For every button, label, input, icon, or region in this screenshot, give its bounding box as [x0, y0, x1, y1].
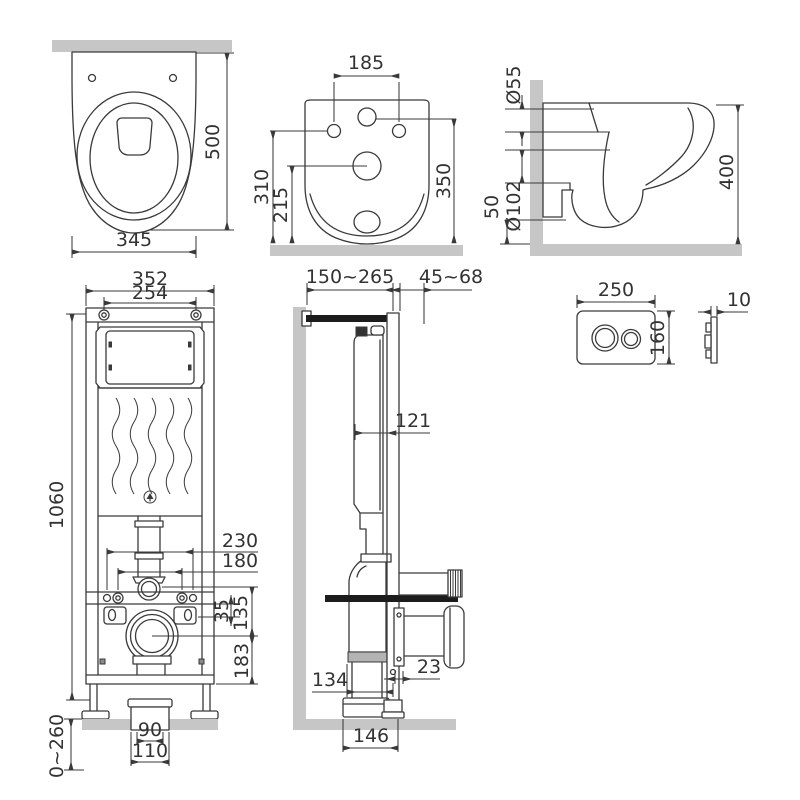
dim-rail-gap: 23 [417, 656, 441, 678]
outlet-pipe [137, 664, 165, 675]
view-frame-side: 150~265 45~68 121 23 134 146 [293, 266, 483, 752]
dim-bowl-height: 400 [716, 154, 738, 190]
rail-clip [100, 659, 105, 664]
overflow-cap [371, 326, 384, 335]
brand-logo-mark [147, 493, 154, 502]
dim-elbow-depth: 134 [312, 669, 348, 691]
seat-outer [77, 92, 191, 220]
inner-line [589, 103, 598, 132]
wall-surface [293, 307, 306, 719]
dim-bolt-span: 180 [222, 550, 258, 572]
dim-tank-depth: 121 [395, 410, 431, 432]
bowl-side-outline [543, 103, 714, 227]
dim-drain-height: 215 [270, 187, 292, 223]
mount-hole [393, 125, 406, 138]
dim-drain-offset: 135 [230, 595, 252, 631]
window-clip [109, 365, 112, 370]
floor-surface [270, 245, 463, 256]
view-bowl-side: Ø55 Ø102 50 400 [481, 65, 744, 256]
dim-drain-to-base: 183 [231, 643, 253, 679]
seat-inner [90, 103, 178, 213]
view-bowl-rear: 185 310 215 350 [251, 52, 463, 256]
dim-depth-range: 150~265 [306, 266, 394, 288]
stud-hole [190, 595, 197, 602]
dim-bowl-width: 345 [116, 229, 152, 251]
bowl-outline [72, 52, 196, 233]
dim-outlet-outer: 110 [132, 740, 168, 762]
hinge-hole [89, 75, 96, 82]
dim-base-depth: 146 [353, 725, 389, 747]
foot-plate [82, 711, 109, 719]
dim-stud-span: 230 [222, 530, 258, 552]
tank-insulation-waves [112, 398, 192, 494]
ext-line [400, 283, 424, 324]
waste-connector-flange [444, 606, 464, 668]
waste-elbow [349, 558, 386, 652]
dim-floor-range: 0~260 [46, 714, 68, 778]
mount-hole [328, 125, 341, 138]
window-clip [109, 342, 112, 347]
waste-connector-pipe [404, 616, 444, 656]
fixing-bolt [177, 593, 187, 603]
seal-ring [348, 652, 387, 662]
flush-connector-pipe [399, 573, 448, 595]
access-window [106, 331, 194, 384]
dim-plate-height: 160 [647, 320, 669, 356]
view-frame-front: 352 254 [46, 268, 258, 778]
wall-surface [530, 80, 543, 256]
flush-plate-profile [711, 317, 717, 363]
dim-inlet-height: 350 [433, 163, 455, 199]
outlet-clamp [133, 656, 171, 664]
dim-outlet-inner: 90 [138, 719, 162, 741]
inlet-valve-cap [356, 327, 367, 336]
cistern-base [360, 513, 383, 556]
top-bolt [99, 310, 109, 320]
dim-adapter-range: 45~68 [419, 266, 483, 288]
ext-line [334, 82, 399, 122]
down-pipe [352, 662, 382, 698]
stud-hole [104, 595, 111, 602]
pipe-collar [135, 521, 163, 527]
fixing-bolt [113, 593, 123, 603]
window-clip [189, 365, 192, 370]
view-flush-plate: 250 160 10 [577, 279, 751, 364]
ext-line [711, 306, 717, 316]
dim-bowl-depth: 500 [202, 124, 224, 160]
wall-anchor-rod [306, 315, 387, 322]
flush-opening [117, 118, 152, 155]
window-clip [189, 342, 192, 347]
dim-plate-thickness: 10 [727, 289, 751, 311]
dim-inlet-diameter: Ø55 [503, 65, 525, 104]
inner-curve [646, 108, 693, 185]
plate-clip [705, 335, 711, 348]
top-bolt [191, 310, 201, 320]
water-inlet [358, 108, 376, 126]
rail-foot-plate [382, 712, 404, 718]
trap-bump [354, 211, 380, 233]
flush-plate-face [577, 311, 655, 364]
foot-plate [191, 711, 218, 719]
plate-clip [706, 350, 711, 358]
dim-drain-gap: 50 [481, 195, 503, 219]
bowl-rear-outline [305, 100, 429, 244]
plate-clip [706, 323, 711, 332]
drain-cap [128, 699, 172, 707]
rail-foot [384, 700, 402, 712]
dim-frame-height: 1060 [46, 481, 68, 529]
leader-lines [270, 119, 456, 166]
dim-bolt-spacing: 254 [132, 282, 168, 304]
pipe-collar [135, 553, 163, 559]
drawing-svg: 500 345 185 310 215 350 Ø5 [0, 0, 800, 800]
dim-bar-offset: 35 [211, 599, 233, 623]
floor-surface [530, 244, 742, 256]
rail-clip [199, 659, 204, 664]
wall-surface [52, 40, 232, 52]
cistern-profile [354, 335, 383, 513]
bowl-rim-line [310, 194, 424, 236]
hinge-hole [170, 75, 177, 82]
support-bar [325, 595, 458, 602]
bowl-back-curve [603, 132, 619, 222]
dim-drain-diameter: Ø102 [503, 180, 525, 231]
dim-hole-spacing: 185 [348, 52, 384, 74]
view-bowl-top: 500 345 [52, 40, 234, 258]
dim-plate-width: 250 [598, 279, 634, 301]
technical-drawing-canvas: 500 345 185 310 215 350 Ø5 [0, 0, 800, 800]
